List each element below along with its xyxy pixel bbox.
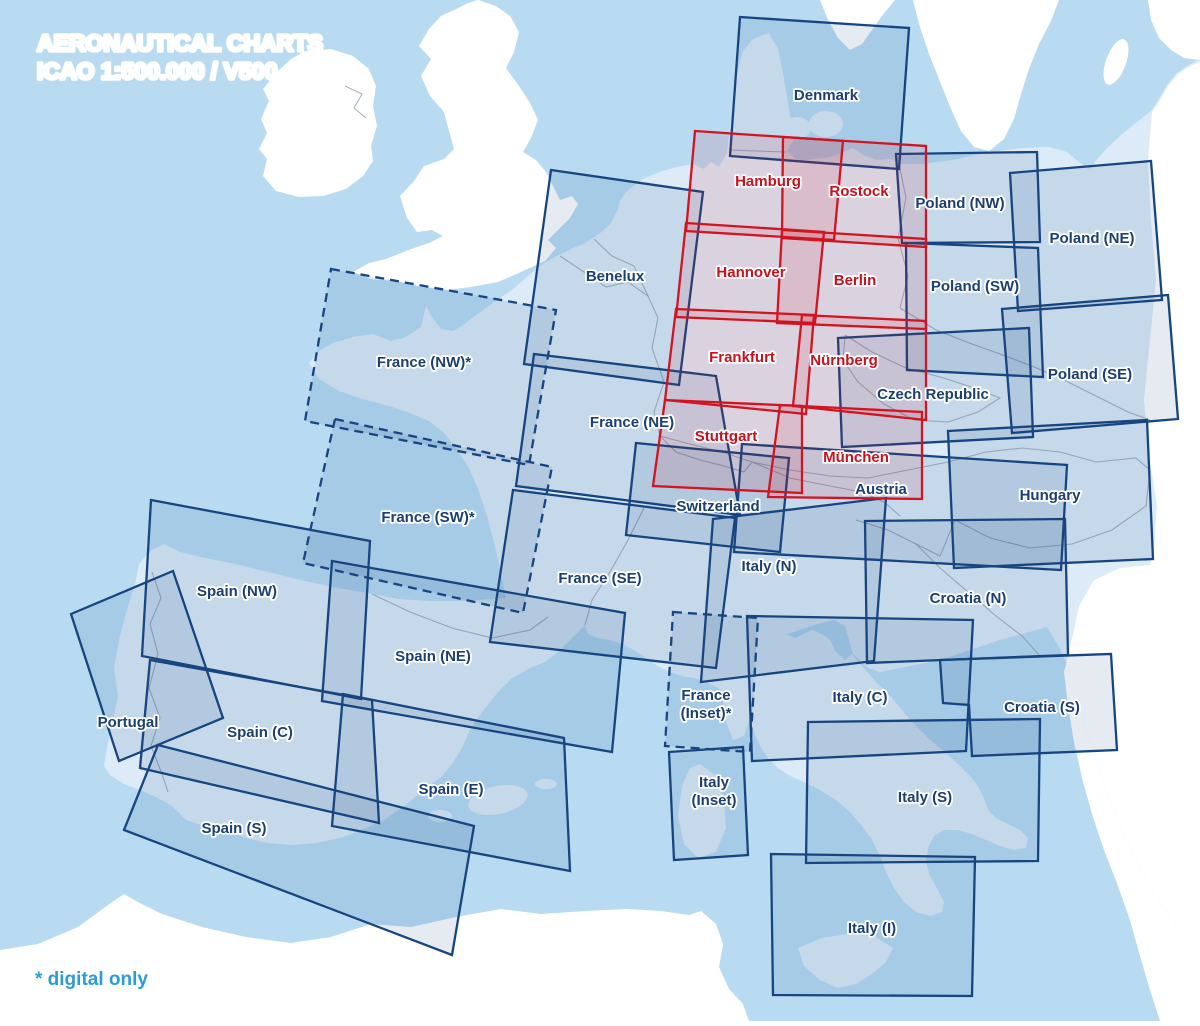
svg-text:Italy (I): Italy (I) bbox=[848, 920, 896, 937]
svg-text:Nürnberg: Nürnberg bbox=[810, 352, 878, 369]
svg-text:Benelux: Benelux bbox=[586, 268, 645, 285]
svg-text:Spain (E): Spain (E) bbox=[418, 781, 483, 798]
svg-text:France: France bbox=[681, 687, 730, 704]
svg-text:Poland (SW): Poland (SW) bbox=[931, 278, 1019, 295]
svg-text:Spain (NE): Spain (NE) bbox=[395, 648, 471, 665]
svg-text:Rostock: Rostock bbox=[829, 183, 889, 200]
svg-text:France (SW)*: France (SW)* bbox=[381, 509, 475, 526]
svg-text:Italy (C): Italy (C) bbox=[832, 689, 887, 706]
svg-text:(Inset)*: (Inset)* bbox=[681, 705, 732, 722]
svg-text:Czech Republic: Czech Republic bbox=[877, 386, 989, 403]
svg-text:Italy: Italy bbox=[699, 774, 730, 791]
svg-text:* digital only: * digital only bbox=[35, 969, 148, 990]
svg-text:ICAO 1:500.000 / V500: ICAO 1:500.000 / V500 bbox=[37, 58, 277, 84]
svg-text:Frankfurt: Frankfurt bbox=[709, 349, 775, 366]
svg-text:München: München bbox=[823, 449, 889, 466]
svg-text:Poland (NW): Poland (NW) bbox=[915, 195, 1004, 212]
svg-text:Croatia (S): Croatia (S) bbox=[1004, 699, 1080, 716]
svg-text:France (SE): France (SE) bbox=[558, 570, 641, 587]
svg-text:Berlin: Berlin bbox=[834, 272, 877, 289]
svg-text:Poland (SE): Poland (SE) bbox=[1048, 366, 1132, 383]
svg-text:Portugal: Portugal bbox=[98, 714, 159, 731]
svg-text:France (NE): France (NE) bbox=[590, 414, 674, 431]
svg-text:Switzerland: Switzerland bbox=[676, 498, 759, 515]
svg-text:Italy (S): Italy (S) bbox=[898, 789, 952, 806]
svg-text:AERONAUTICAL CHARTS: AERONAUTICAL CHARTS bbox=[37, 30, 323, 56]
svg-text:Poland (NE): Poland (NE) bbox=[1050, 230, 1135, 247]
svg-text:Stuttgart: Stuttgart bbox=[695, 428, 758, 445]
svg-text:Spain (S): Spain (S) bbox=[201, 820, 266, 837]
svg-text:Spain (NW): Spain (NW) bbox=[197, 583, 277, 600]
svg-text:Hungary: Hungary bbox=[1020, 487, 1082, 504]
svg-text:Italy (N): Italy (N) bbox=[741, 558, 796, 575]
svg-text:France (NW)*: France (NW)* bbox=[377, 354, 471, 371]
svg-text:(Inset): (Inset) bbox=[692, 792, 737, 809]
svg-text:Croatia (N): Croatia (N) bbox=[930, 590, 1007, 607]
svg-text:Hamburg: Hamburg bbox=[735, 173, 801, 190]
svg-text:Austria: Austria bbox=[855, 481, 907, 498]
svg-text:Denmark: Denmark bbox=[794, 87, 859, 104]
svg-text:Spain (C): Spain (C) bbox=[227, 724, 293, 741]
svg-text:Hannover: Hannover bbox=[716, 264, 785, 281]
